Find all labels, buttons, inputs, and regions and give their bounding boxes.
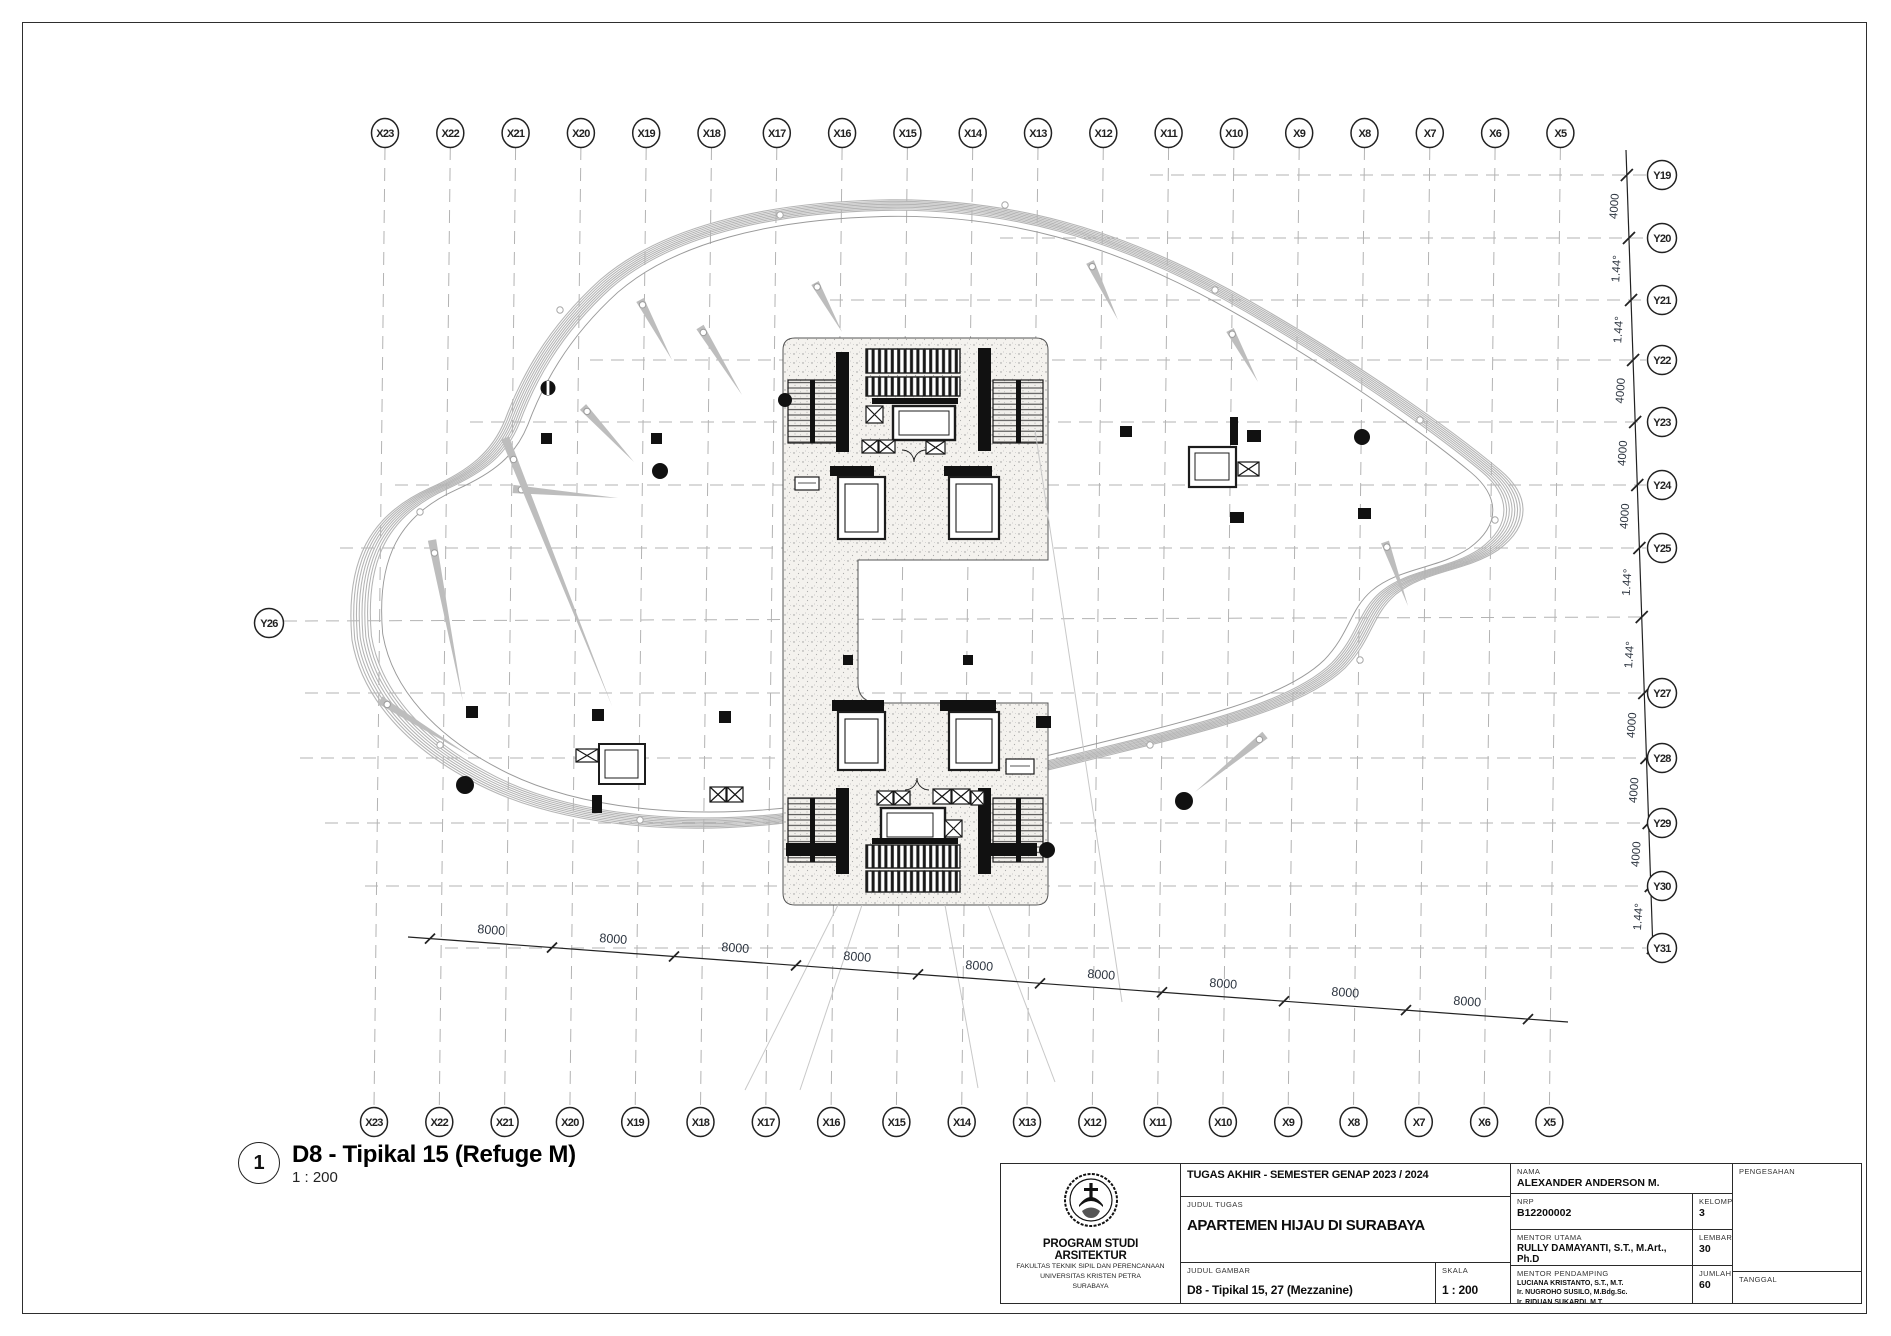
column-marker [843, 655, 853, 665]
bottom-dimension-line [408, 937, 1568, 1022]
judul-tugas-cell: JUDUL TUGAS APARTEMEN HIJAU DI SURABAYA [1180, 1196, 1511, 1263]
x-grid-label: X21 [496, 1117, 514, 1129]
lembar-cell: LEMBAR 30 [1692, 1229, 1733, 1266]
x-grid-line [1484, 147, 1495, 1108]
column-marker [719, 711, 731, 723]
jumlah-label: JUMLAH [1699, 1269, 1726, 1278]
x-grid-line [896, 147, 907, 1108]
x-grid-label: X15 [888, 1117, 906, 1129]
mentor-pendamping-1: LUCIANA KRISTANTO, S.T., M.T. [1517, 1279, 1686, 1288]
project-header-cell: TUGAS AKHIR - SEMESTER GENAP 2023 / 2024 [1180, 1163, 1511, 1197]
x-grid-label: X13 [1029, 128, 1047, 140]
tanggal-label: TANGGAL [1739, 1275, 1855, 1284]
y-grid-label: Y24 [1653, 480, 1672, 492]
louver-band [866, 349, 960, 373]
shaft-xbox [866, 406, 883, 423]
mentor-pendamping-2: Ir. NUGROHO SUSILO, M.Bdg.Sc. [1517, 1288, 1686, 1297]
judul-gambar-value: D8 - Tipikal 15, 27 (Mezzanine) [1187, 1283, 1429, 1297]
x-grid-label: X12 [1095, 128, 1113, 140]
reference-line [945, 905, 978, 1088]
mullion-circle [1417, 417, 1423, 423]
leader-spike [501, 436, 612, 706]
x-grid-label: X16 [833, 128, 851, 140]
mullion-circle [557, 307, 563, 313]
point-marker [456, 776, 474, 794]
x-grid-label: X23 [365, 1117, 383, 1129]
x-grid-label: X8 [1347, 1117, 1360, 1129]
dimension-value: 8000 [599, 931, 628, 947]
column-marker [592, 709, 604, 721]
column-marker [541, 433, 552, 444]
x-grid-label: X7 [1424, 128, 1437, 140]
institution-cell: PROGRAM STUDI ARSITEKTUR FAKULTAS TEKNIK… [1000, 1163, 1181, 1304]
shaft-xbox [926, 441, 945, 454]
x-grid-line [1549, 147, 1560, 1108]
dimension-value: 1.44° [1610, 255, 1624, 283]
x-grid-label: X5 [1554, 128, 1567, 140]
nrp-value: B12200002 [1517, 1207, 1686, 1219]
x-grid-label: X11 [1160, 128, 1177, 140]
x-grid-label: X9 [1282, 1117, 1295, 1129]
spike-base-circle [510, 456, 516, 462]
x-grid-label: X11 [1149, 1117, 1166, 1129]
shaft-xbox [862, 440, 878, 453]
mentor-pendamping-label: MENTOR PENDAMPING [1517, 1269, 1686, 1278]
nama-value: ALEXANDER ANDERSON M. [1517, 1177, 1726, 1189]
x-grid-label: X17 [768, 128, 786, 140]
mullion-circle [1002, 202, 1008, 208]
spike-base-circle [584, 408, 590, 414]
shaft-xbox [945, 820, 962, 837]
dimension-value: 8000 [1331, 985, 1360, 1001]
university-logo [1062, 1171, 1120, 1229]
lembar-value: 30 [1699, 1243, 1726, 1255]
spike-base-circle [1089, 263, 1095, 269]
x-grid-label: X15 [899, 128, 917, 140]
x-grid-label: X18 [703, 128, 721, 140]
callout-number: 1 [238, 1142, 280, 1184]
tanggal-cell: TANGGAL [1732, 1271, 1862, 1304]
nama-label: NAMA [1517, 1167, 1726, 1176]
floor-plan-svg: 40001.44°1.44°4000400040001.44°1.44°4000… [0, 0, 1891, 1336]
y-grid-label: Y30 [1653, 881, 1671, 893]
dimension-value: 8000 [477, 922, 506, 938]
spike-base-circle [1229, 331, 1235, 337]
y-grid-label: Y31 [1653, 943, 1671, 955]
x-grid-label: X23 [376, 128, 394, 140]
x-grid-label: X20 [561, 1117, 579, 1129]
y-grid-label: Y29 [1653, 818, 1671, 830]
column-marker [963, 655, 973, 665]
x-grid-label: X19 [626, 1117, 644, 1129]
x-grid-label: X6 [1489, 128, 1502, 140]
column-marker [1230, 512, 1244, 523]
x-grid-label: X20 [572, 128, 590, 140]
x-grid-label: X14 [964, 128, 983, 140]
x-grid-label: X19 [637, 128, 655, 140]
y-grid-label: Y25 [1653, 543, 1671, 555]
x-grid-line [1092, 147, 1103, 1108]
x-grid-label: X9 [1293, 128, 1306, 140]
x-grid-label: X10 [1225, 128, 1243, 140]
mullion-circle [777, 212, 783, 218]
shaft-xbox [894, 791, 910, 805]
jumlah-value: 60 [1699, 1279, 1726, 1291]
reference-line [800, 905, 862, 1090]
lembar-label: LEMBAR [1699, 1233, 1726, 1242]
kelompok-value: 3 [1699, 1207, 1726, 1219]
x-grid-label: X16 [822, 1117, 840, 1129]
reference-line [745, 905, 838, 1090]
x-grid-label: X17 [757, 1117, 775, 1129]
mullion-circle [1212, 287, 1218, 293]
x-grid-line [1027, 147, 1038, 1108]
point-marker [1354, 429, 1370, 445]
building-core [783, 338, 1055, 905]
dimension-value: 4000 [1608, 193, 1622, 219]
x-grid-line [1158, 147, 1169, 1108]
point-marker [1175, 792, 1193, 810]
x-grid-label: X10 [1214, 1117, 1232, 1129]
louver-band [866, 845, 960, 868]
column-marker [592, 795, 602, 813]
spike-base-circle [431, 550, 437, 556]
x-grid-label: X12 [1084, 1117, 1102, 1129]
nama-cell: NAMA ALEXANDER ANDERSON M. [1510, 1163, 1733, 1194]
mentor-utama-cell: MENTOR UTAMA RULLY DAMAYANTI, S.T., M.Ar… [1510, 1229, 1693, 1266]
x-grid-label: X5 [1543, 1117, 1556, 1129]
column-marker [466, 706, 478, 718]
y-grid-label: Y28 [1653, 753, 1671, 765]
shaft-xbox [727, 787, 743, 802]
mullion-circle [1357, 657, 1363, 663]
louver-band [866, 377, 960, 396]
spike-base-circle [384, 701, 390, 707]
mullion-circle [1492, 517, 1498, 523]
column-marker [651, 433, 662, 444]
louver-band [866, 871, 960, 892]
dimension-value: 8000 [843, 949, 872, 965]
x-grid-label: X22 [442, 128, 460, 140]
spike-base-circle [1384, 544, 1390, 550]
skala-cell: SKALA 1 : 200 [1435, 1262, 1511, 1304]
dimension-value: 8000 [1209, 976, 1238, 992]
x-grid-label: X6 [1478, 1117, 1491, 1129]
mentor-utama-value: RULLY DAMAYANTI, S.T., M.Art., Ph.D [1517, 1243, 1686, 1265]
y-grid-label: Y20 [1653, 233, 1671, 245]
dimension-value: 4000 [1618, 503, 1632, 529]
spike-base-circle [700, 329, 706, 335]
dimension-value: 8000 [1453, 994, 1482, 1010]
keyplan-marker-slit [547, 381, 550, 395]
dimension-value: 8000 [965, 958, 994, 974]
spike-base-circle [814, 284, 820, 290]
dimension-value: 4000 [1616, 440, 1630, 466]
dimension-value: 4000 [1614, 378, 1628, 404]
skala-value: 1 : 200 [1442, 1283, 1504, 1297]
x-grid-label: X21 [507, 128, 525, 140]
drawing-callout: 1 D8 - Tipikal 15 (Refuge M) 1 : 200 [238, 1142, 576, 1186]
drawing-scale: 1 : 200 [292, 1169, 576, 1186]
y-grid-label: Y27 [1653, 688, 1671, 700]
x-grid-line [505, 147, 516, 1108]
column-marker [1358, 508, 1371, 519]
dimension-value: 1.44° [1632, 903, 1646, 931]
y-grid-label: Y22 [1653, 355, 1671, 367]
city-name: SURABAYA [1007, 1282, 1174, 1292]
kelompok-cell: KELOMPOK 3 [1692, 1193, 1733, 1230]
shaft-xbox [576, 749, 598, 762]
university-name: UNIVERSITAS KRISTEN PETRA [1007, 1272, 1174, 1282]
grid-bubbles-layer: X23X23X22X22X21X21X20X20X19X19X18X18X17X… [255, 119, 1677, 1137]
drawing-title: D8 - Tipikal 15 (Refuge M) [292, 1142, 576, 1167]
dimension-value: 4000 [1626, 712, 1640, 738]
reference-line [988, 905, 1055, 1082]
mentor-pendamping-cell: MENTOR PENDAMPING LUCIANA KRISTANTO, S.T… [1510, 1265, 1693, 1304]
shaft-xbox [933, 789, 951, 804]
x-grid-label: X13 [1018, 1117, 1036, 1129]
jumlah-cell: JUMLAH 60 [1692, 1265, 1733, 1304]
dimension-value: 8000 [1087, 967, 1116, 983]
nrp-cell: NRP B12200002 [1510, 1193, 1693, 1230]
x-grid-line [570, 147, 581, 1108]
mullion-circle [417, 509, 423, 515]
drawing-sheet: 40001.44°1.44°4000400040001.44°1.44°4000… [0, 0, 1891, 1336]
x-grid-line [701, 147, 712, 1108]
x-grid-line [635, 147, 646, 1108]
title-block: PROGRAM STUDI ARSITEKTUR FAKULTAS TEKNIK… [1000, 1163, 1862, 1304]
kelompok-label: KELOMPOK [1699, 1197, 1726, 1206]
dimension-value: 1.44° [1612, 316, 1626, 344]
x-grid-label: X18 [692, 1117, 710, 1129]
pengesahan-cell: PENGESAHAN [1732, 1163, 1862, 1272]
dimension-value: 1.44° [1621, 568, 1635, 596]
spike-base-circle [639, 302, 645, 308]
pengesahan-label: PENGESAHAN [1739, 1167, 1855, 1176]
spike-base-circle [1256, 736, 1262, 742]
dimension-value: 1.44° [1623, 641, 1637, 669]
shaft-box [1006, 759, 1034, 774]
shaft-xbox [952, 789, 970, 804]
shaft-xbox [1238, 462, 1259, 476]
x-grid-line [1288, 147, 1299, 1108]
x-grid-label: X8 [1358, 128, 1371, 140]
skala-label: SKALA [1442, 1266, 1504, 1275]
x-grid-label: X7 [1413, 1117, 1426, 1129]
mentor-pendamping-3: Ir. RIDUAN SUKARDI, M.T. [1517, 1298, 1686, 1304]
mullion-circle [1147, 742, 1153, 748]
shaft-xbox [710, 787, 726, 802]
judul-tugas-label: JUDUL TUGAS [1187, 1200, 1504, 1209]
y-grid-line [284, 617, 1646, 621]
program-name: PROGRAM STUDI ARSITEKTUR [1007, 1238, 1174, 1262]
nrp-label: NRP [1517, 1197, 1686, 1206]
y-grid-label: Y19 [1653, 170, 1671, 182]
shaft-xbox [877, 791, 893, 805]
dimension-value: 8000 [721, 940, 750, 956]
mullion-circle [637, 817, 643, 823]
judul-tugas-value: APARTEMEN HIJAU DI SURABAYA [1187, 1217, 1504, 1234]
shaft-xbox [879, 440, 895, 453]
mentor-utama-label: MENTOR UTAMA [1517, 1233, 1686, 1242]
dimension-value: 4000 [1628, 777, 1642, 803]
y-grid-label: Y26 [260, 618, 278, 630]
column-marker [1120, 426, 1132, 437]
x-grid-line [374, 147, 385, 1108]
x-grid-label: X22 [431, 1117, 449, 1129]
mullion-circle [437, 742, 443, 748]
shaft-xbox [971, 791, 984, 805]
judul-gambar-cell: JUDUL GAMBAR D8 - Tipikal 15, 27 (Mezzan… [1180, 1262, 1436, 1304]
faculty-name: FAKULTAS TEKNIK SIPIL DAN PERENCANAAN [1007, 1262, 1174, 1272]
shaft-box [795, 477, 819, 490]
judul-gambar-label: JUDUL GAMBAR [1187, 1266, 1429, 1275]
y-grid-label: Y23 [1653, 417, 1671, 429]
x-grid-label: X14 [953, 1117, 972, 1129]
dimension-value: 4000 [1630, 841, 1644, 867]
point-marker [778, 393, 792, 407]
x-grid-line [1419, 147, 1430, 1108]
point-marker [652, 463, 668, 479]
y-grid-label: Y21 [1653, 295, 1671, 307]
